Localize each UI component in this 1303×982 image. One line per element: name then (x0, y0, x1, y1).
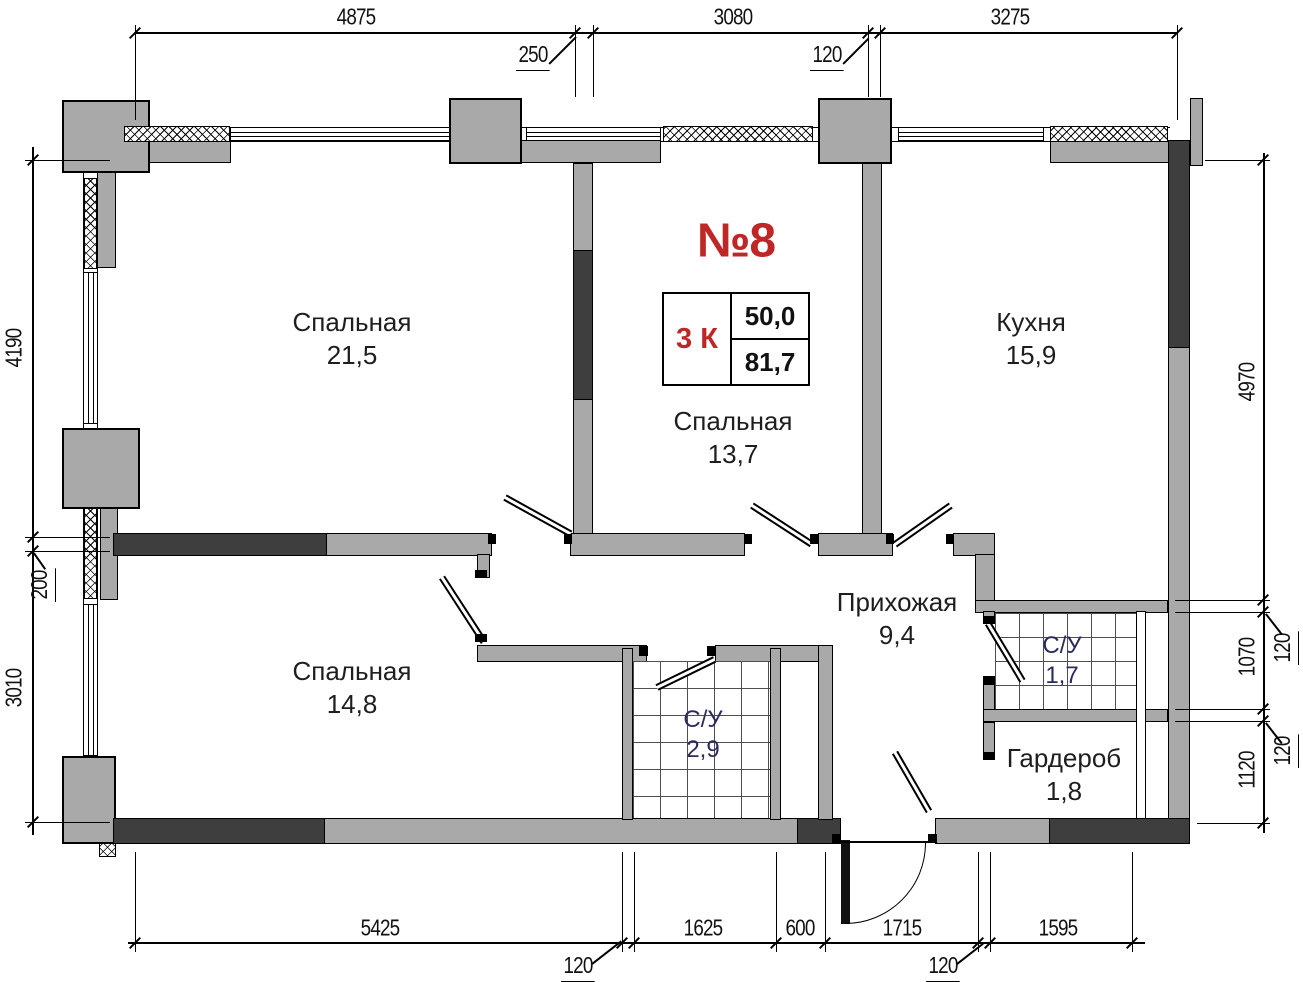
bathroom2-left-wall (622, 648, 633, 820)
apartment-stamp: 3 К 50,0 81,7 (662, 292, 810, 386)
hatch-pier (84, 178, 97, 269)
room-area: 13,7 (674, 438, 793, 471)
room-name: С/У (1042, 631, 1081, 661)
room-area: 9,4 (837, 619, 957, 652)
extension-line (1175, 709, 1270, 710)
dim-label: 5425 (361, 915, 400, 942)
wall-band (1050, 140, 1170, 163)
hatch-panel (663, 126, 813, 142)
dim-leader (33, 552, 46, 569)
window (526, 127, 661, 141)
extension-line (25, 551, 110, 552)
entrance-threshold (841, 841, 935, 843)
door-jamb (983, 752, 995, 760)
apartment-number: №8 (697, 214, 775, 269)
dimension-line-top (135, 32, 1177, 34)
duct-shaft (1136, 611, 1146, 819)
bottom-wall-dark-segment (113, 818, 326, 844)
room-area: 2,9 (683, 735, 722, 765)
door-leaf-wardrobe (892, 751, 932, 813)
dimension-line-bottom (128, 942, 1145, 944)
dim-label: 4190 (1, 329, 28, 368)
extension-line (25, 537, 110, 538)
room-name: Кухня (996, 306, 1066, 339)
door-jamb (707, 646, 716, 656)
dim-label: 200 (26, 568, 56, 602)
stamp-total-area: 81,7 (732, 340, 808, 384)
wall (326, 533, 492, 556)
hall-wall (818, 645, 833, 820)
dim-label: 3010 (1, 669, 28, 708)
room-area: 1,7 (1042, 661, 1081, 691)
room-label-bedroom1: Спальная 21,5 (293, 306, 412, 372)
wall (953, 533, 995, 556)
hatch-panel (124, 126, 230, 142)
right-wall (1168, 347, 1190, 844)
wall (570, 533, 745, 556)
wall (818, 533, 893, 556)
room-label-bedroom3: Спальная 14,8 (293, 655, 412, 721)
wall-dark-segment (113, 533, 328, 556)
wall-jog (975, 554, 995, 604)
extension-line (990, 852, 991, 952)
window (83, 272, 98, 424)
bottom-wall (935, 818, 1051, 844)
dim-label: 600 (785, 915, 814, 942)
bathroom1-left-wall (983, 684, 995, 710)
dim-label: 250 (516, 41, 550, 71)
dim-label: 4875 (337, 4, 376, 31)
door-jamb (475, 634, 487, 642)
room-area: 15,9 (996, 339, 1066, 372)
extension-line (868, 25, 869, 97)
dim-label: 120 (926, 952, 960, 982)
room-area: 21,5 (293, 339, 412, 372)
stamp-areas: 50,0 81,7 (732, 294, 808, 384)
extension-line (1175, 612, 1270, 613)
room-name: Спальная (674, 405, 793, 438)
dim-label: 120 (561, 952, 595, 982)
window (898, 127, 1044, 141)
door-jamb (475, 570, 487, 578)
bottom-wall-dark-segment (1049, 818, 1190, 844)
door-jamb (983, 616, 995, 624)
extension-line (1175, 600, 1270, 601)
extension-line (593, 25, 594, 97)
dimension-line-right (1263, 153, 1265, 833)
corner-pier (1190, 98, 1203, 166)
partition-dark-segment (573, 250, 593, 400)
room-name: С/У (683, 705, 722, 735)
dim-label: 3275 (991, 4, 1030, 31)
dim-leader (842, 38, 869, 65)
extension-line (776, 852, 777, 952)
door-jamb (639, 646, 648, 656)
right-wall-dark-segment (1168, 140, 1190, 349)
pier (818, 98, 892, 164)
door-jamb (564, 534, 572, 544)
extension-line (25, 160, 110, 161)
door-jamb (832, 834, 841, 843)
floor-plan-sheet: 4875 250 3080 120 3275 4190 200 3010 497… (0, 0, 1303, 982)
room-label-kitchen: Кухня 15,9 (996, 306, 1066, 372)
extension-line (135, 25, 136, 120)
extension-line (825, 852, 826, 952)
door-jamb (488, 534, 496, 544)
extension-line (135, 852, 136, 952)
dim-label: 4970 (1234, 363, 1261, 402)
door-jamb (886, 534, 894, 544)
room-label-wardrobe: Гардероб 1,8 (1007, 742, 1121, 808)
extension-line (622, 852, 623, 952)
stamp-living-area: 50,0 (732, 294, 808, 340)
hatch-pier (84, 508, 97, 599)
room-label-hallway: Прихожая 9,4 (837, 586, 957, 652)
dim-label: 1595 (1039, 915, 1078, 942)
door-jamb (983, 676, 995, 684)
dimension-line-left (32, 147, 34, 835)
door-leaf-bedroom2 (750, 503, 813, 548)
extension-line (978, 852, 979, 952)
room-area: 1,8 (1007, 775, 1121, 808)
pilaster (62, 756, 116, 844)
dim-label: 1120 (1234, 751, 1261, 788)
pilaster (62, 428, 140, 509)
room-area: 14,8 (293, 688, 412, 721)
bathroom2-right-wall (770, 648, 781, 820)
room-label-bathroom2: С/У 2,9 (683, 705, 722, 765)
stamp-room-count: 3 К (664, 294, 732, 384)
hatch-corner (99, 843, 116, 857)
partition-kitchen (862, 163, 882, 535)
dim-label: 120 (1269, 631, 1299, 665)
dim-leader (592, 940, 622, 964)
dim-label: 1070 (1234, 638, 1261, 677)
dim-label: 120 (810, 41, 844, 71)
extension-line (25, 822, 110, 823)
pier (449, 98, 522, 164)
dim-label: 120 (1269, 734, 1299, 768)
room-name: Спальная (293, 306, 412, 339)
dim-label: 1625 (684, 915, 723, 942)
extension-line (1177, 25, 1178, 120)
door-leaf-bedroom1 (503, 494, 572, 536)
extension-line (1132, 852, 1133, 952)
dim-label: 1715 (883, 915, 922, 942)
door-jamb (946, 534, 954, 544)
extension-line (634, 852, 635, 952)
window (83, 604, 98, 756)
room-name: Гардероб (1007, 742, 1121, 775)
dim-leader (957, 943, 984, 964)
room-label-bathroom1: С/У 1,7 (1042, 631, 1081, 691)
dim-label: 3080 (714, 4, 753, 31)
door-jamb (744, 534, 752, 544)
room-label-bedroom2: Спальная 13,7 (674, 405, 793, 471)
hatch-panel (1050, 126, 1168, 142)
door-jamb (928, 834, 937, 843)
dim-leader (548, 36, 576, 64)
extension-line (880, 25, 881, 97)
window (230, 127, 450, 141)
room-name: Спальная (293, 655, 412, 688)
extension-line (1175, 721, 1270, 722)
door-leaf-kitchen (893, 503, 953, 548)
bottom-wall (324, 818, 799, 844)
room-name: Прихожая (837, 586, 957, 619)
door-jamb (810, 534, 818, 544)
